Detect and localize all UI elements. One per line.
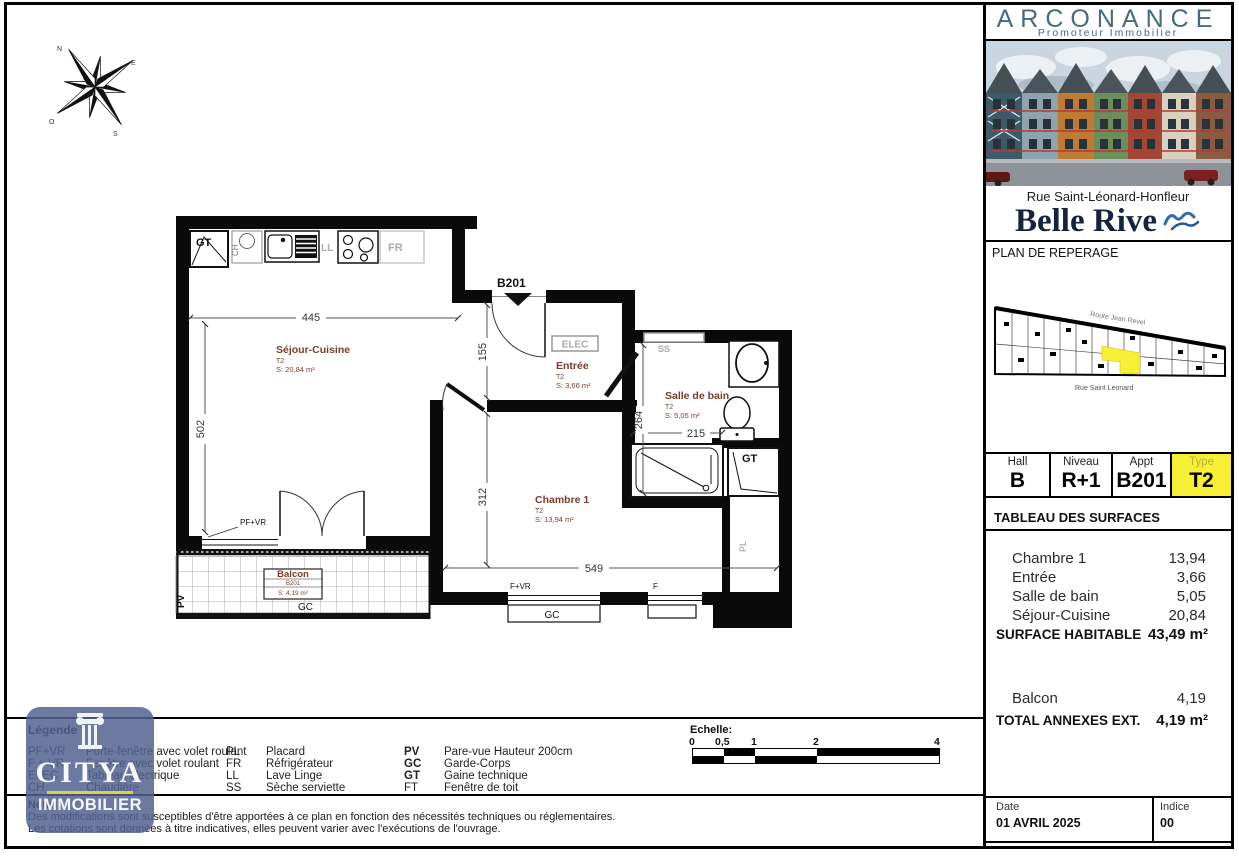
fvr-label: F+VR (510, 582, 531, 591)
page-border-left (4, 2, 7, 849)
dim-549: 549 (585, 563, 603, 575)
f-window-box (648, 605, 696, 618)
pfvr-label: PF+VR (240, 518, 266, 527)
surface-total-row: SURFACE HABITABLE43,49 m² (996, 626, 1208, 643)
project-logo: Belle Rive (986, 203, 1230, 239)
unit-table-bottom (986, 496, 1231, 498)
date-label: Date (996, 801, 1019, 813)
ch-label: CH (231, 244, 240, 256)
apartment-door-label: B201 (497, 276, 526, 290)
legend-column-2: PLPlacard FRRéfrigérateur LLLave Linge S… (226, 746, 396, 794)
appt-header: Appt (1113, 456, 1170, 468)
room-entree-type: T2 (556, 374, 564, 381)
ss-label: SS (658, 344, 670, 354)
hall-value: B (986, 469, 1049, 493)
legend-item: GCGarde-Corps (404, 758, 644, 770)
elec-label: ELEC (562, 340, 589, 351)
column-icon (68, 711, 112, 751)
wave-icon (1163, 208, 1201, 234)
room-chambre-surface: S: 13,94 m² (535, 515, 574, 524)
bathroom-fixtures (631, 333, 779, 497)
pl-label: PL (738, 541, 748, 552)
room-sejour-type: T2 (276, 358, 284, 365)
balcon-surface: S: 4,19 m² (278, 590, 309, 597)
room-sejour-surface: S: 20,84 m² (276, 365, 315, 374)
street-bottom-label: Rue Saint Leonard (1075, 385, 1133, 392)
scale-tick-4: 4 (934, 736, 940, 748)
citya-watermark: CITYA IMMOBILIER (26, 707, 154, 833)
compass-rose: N E S O (45, 35, 145, 140)
watermark-rule (47, 791, 133, 794)
dim-502: 502 (195, 420, 207, 438)
surface-row: Entrée3,66 (1012, 569, 1206, 586)
room-chambre-type: T2 (535, 508, 543, 515)
gc-fenetre-label: GC (545, 610, 560, 621)
type-value: T2 (1172, 469, 1231, 493)
watermark-sub: IMMOBILIER (26, 796, 154, 815)
legend-item: SSSèche serviette (226, 782, 396, 794)
balcon-unit: B201 (286, 581, 301, 587)
floor-plan-sheet: { "compass": {"n":"N","e":"E","s":"S","o… (0, 0, 1239, 856)
meta-top (986, 796, 1231, 798)
legend-column-3: PVPare-vue Hauteur 200cm GCGarde-Corps G… (404, 746, 644, 794)
room-bain-surface: S: 5,05 m² (665, 411, 700, 420)
meta-divider (1152, 796, 1154, 843)
dim-312: 312 (477, 488, 489, 506)
legend-item: LLLave Linge (226, 770, 396, 782)
balcon-name: Balcon (277, 569, 309, 580)
annex-total-row: TOTAL ANNEXES EXT.4,19 m² (996, 712, 1208, 729)
room-bain-type: T2 (665, 404, 673, 411)
developer-tagline: Promoteur Immobilier (986, 27, 1230, 39)
pv-label: PV (176, 594, 187, 608)
date-value: 01 AVRIL 2025 (996, 816, 1081, 830)
room-entree-surface: S: 3,66 m² (556, 381, 591, 390)
legend-item: FRRéfrigérateur (226, 758, 396, 770)
scale-tick-0: 0 (689, 736, 695, 748)
scale-tick-2: 2 (813, 736, 819, 748)
room-sejour-name: Séjour-Cuisine (276, 344, 350, 356)
dim-155: 155 (477, 343, 489, 361)
scale-tick-05: 0,5 (715, 736, 730, 748)
niveau-header: Niveau (1051, 456, 1111, 468)
gc-window-box: GC (508, 605, 600, 622)
legend-item: FTFenêtre de toit (404, 782, 644, 794)
gc-balcon-label: GC (298, 602, 313, 613)
compass-west-label: O (49, 119, 55, 126)
surface-row: Séjour-Cuisine20,84 (1012, 607, 1206, 624)
key-plan: Route Jean Revel Rue Saint Leonard (990, 292, 1230, 404)
scale-title: Echelle: (690, 724, 732, 736)
legend-item: GTGaine technique (404, 770, 644, 782)
room-chambre-name: Chambre 1 (535, 494, 589, 506)
gt-bath-label: GT (742, 453, 758, 465)
niveau-value: R+1 (1051, 469, 1111, 493)
compass-south-label: S (113, 131, 118, 138)
nota-line-2: Les cotations sont données à titre indic… (28, 823, 968, 835)
indice-value: 00 (1160, 816, 1174, 830)
compass-north-label: N (57, 46, 62, 53)
scale-bar (692, 748, 940, 764)
page-border-bottom (4, 846, 1234, 849)
ll-label: LL (321, 243, 333, 254)
balcon-label-box: Balcon B201 S: 4,19 m² (264, 569, 322, 599)
scale-tick-1: 1 (751, 736, 757, 748)
dim-264: 264 (633, 411, 645, 429)
nota-line-1: Des modifications sont susceptibles d'êt… (28, 811, 968, 823)
type-header: Type (1172, 456, 1231, 468)
appt-value: B201 (1113, 469, 1170, 493)
surfaces-rule (986, 529, 1231, 531)
gt-top-label: GT (196, 237, 212, 249)
compass-east-label: E (131, 60, 136, 67)
indice-label: Indice (1160, 801, 1189, 813)
meta-bottom (986, 841, 1231, 843)
surface-row: Salle de bain5,05 (1012, 588, 1206, 605)
project-name: Belle Rive (1015, 203, 1157, 240)
hall-header: Hall (986, 456, 1049, 468)
building-photo (986, 41, 1231, 186)
legend-item: PVPare-vue Hauteur 200cm (404, 746, 644, 758)
fr-label: FR (388, 242, 403, 254)
plan-section-title: PLAN DE REPERAGE (992, 246, 1118, 260)
floor-plan-drawing: GT CH LL FR SS GT ELEC B201 445 (160, 200, 820, 640)
room-bain-name: Salle de bain (665, 390, 729, 402)
pfvr-leader (208, 527, 238, 537)
dim-445: 445 (302, 312, 320, 324)
surface-row: Chambre 113,94 (1012, 550, 1206, 567)
sidebar-rule-2 (986, 240, 1231, 242)
dim-215: 215 (687, 428, 705, 440)
annex-row: Balcon4,19 (1012, 690, 1206, 707)
page-border-right (1231, 2, 1234, 849)
room-entree-name: Entrée (556, 360, 589, 372)
watermark-brand: CITYA (26, 756, 154, 790)
legend-item: PLPlacard (226, 746, 396, 758)
surfaces-title: TABLEAU DES SURFACES (994, 510, 1160, 525)
f-label: F (653, 582, 658, 591)
